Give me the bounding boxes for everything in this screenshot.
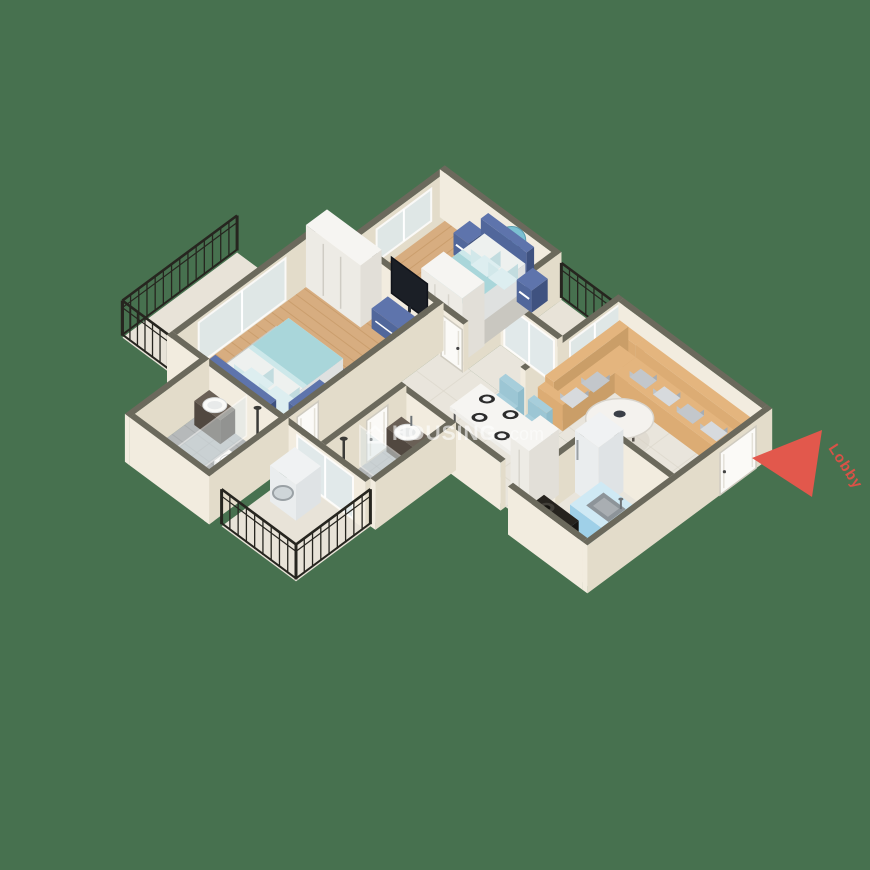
faucet-head	[618, 498, 623, 501]
plate-center	[497, 433, 506, 438]
bedroom1-sw-wall-se	[463, 321, 468, 373]
shower-head	[254, 406, 262, 410]
shower-head	[340, 437, 348, 441]
coffee-table-decor	[614, 410, 626, 417]
plate-center	[506, 412, 515, 417]
bathroom2-nw-wall-sw	[125, 414, 130, 466]
dining-sw-wall-se	[501, 459, 506, 511]
plate-center	[475, 415, 484, 420]
entry-door-handle	[723, 470, 726, 473]
plate-center	[482, 397, 491, 402]
isometric-floorplan: Lobby	[0, 0, 870, 870]
bathroom2-sw-wall-se	[209, 473, 214, 525]
washer-door	[273, 486, 293, 500]
floorplan-canvas: Lobby HOUSING .com	[0, 0, 870, 870]
bedroom1-door-handle	[456, 347, 459, 350]
bathroom1-basin-bowl	[400, 428, 416, 437]
bathroom2-basin-bowl	[207, 401, 222, 409]
entry-se-wall-sw	[582, 542, 587, 594]
